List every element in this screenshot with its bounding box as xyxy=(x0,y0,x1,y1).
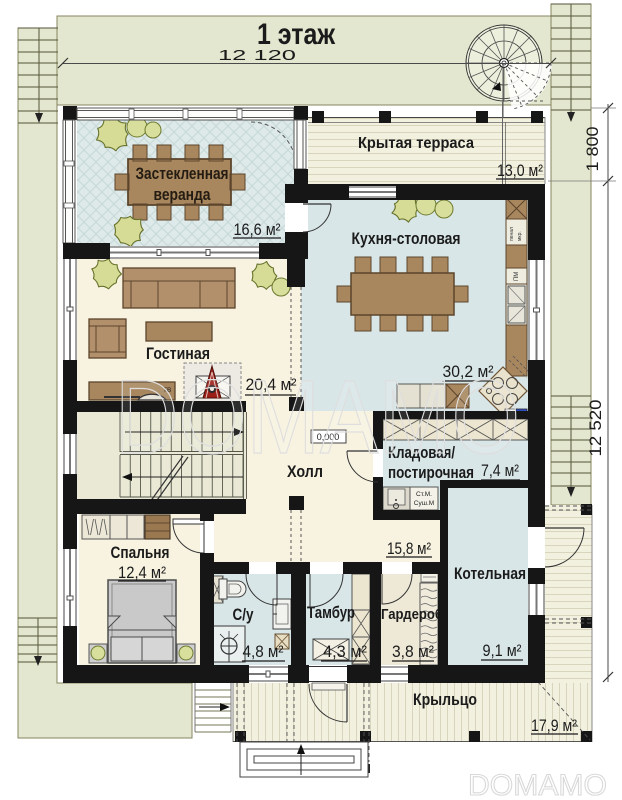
svg-text:ПМ: ПМ xyxy=(514,272,520,281)
svg-text:Крытая терраса: Крытая терраса xyxy=(358,135,474,152)
svg-text:17,9 м²: 17,9 м² xyxy=(531,716,577,735)
svg-text:1 800: 1 800 xyxy=(583,127,602,172)
svg-text:Крыльцо: Крыльцо xyxy=(413,690,477,709)
svg-text:4,8 м²: 4,8 м² xyxy=(243,642,284,661)
svg-text:9,1 м²: 9,1 м² xyxy=(483,641,522,660)
svg-text:13,0 м²: 13,0 м² xyxy=(497,161,543,180)
svg-text:Спальня: Спальня xyxy=(111,543,170,562)
svg-text:Застекленная: Застекленная xyxy=(136,164,229,183)
svg-text:Котельная: Котельная xyxy=(454,564,526,583)
svg-text:Кухня-столовая: Кухня-столовая xyxy=(352,229,461,248)
svg-text:Тамбур: Тамбур xyxy=(307,603,355,622)
svg-text:DOMAMO: DOMAMO xyxy=(115,359,520,476)
svg-text:пенал: пенал xyxy=(509,227,515,241)
svg-text:С/у: С/у xyxy=(233,605,254,624)
svg-text:веранда: веранда xyxy=(154,185,211,204)
svg-text:4,3 м²: 4,3 м² xyxy=(323,642,367,661)
svg-text:15,8 м²: 15,8 м² xyxy=(387,539,431,558)
svg-text:12 120: 12 120 xyxy=(218,48,296,64)
svg-text:Ст.М.: Ст.М. xyxy=(416,491,432,498)
svg-text:Суш.М: Суш.М xyxy=(414,500,434,507)
svg-text:3,8 м²: 3,8 м² xyxy=(392,642,434,661)
svg-text:мкр.: мкр. xyxy=(517,231,523,241)
svg-text:12,4 м²: 12,4 м² xyxy=(118,563,166,582)
svg-text:1 этаж: 1 этаж xyxy=(257,18,336,51)
svg-text:Гардероб: Гардероб xyxy=(381,606,443,623)
svg-text:DOMAMO: DOMAMO xyxy=(468,769,607,800)
svg-text:16,6 м²: 16,6 м² xyxy=(234,220,281,239)
svg-text:12 520: 12 520 xyxy=(586,400,605,457)
